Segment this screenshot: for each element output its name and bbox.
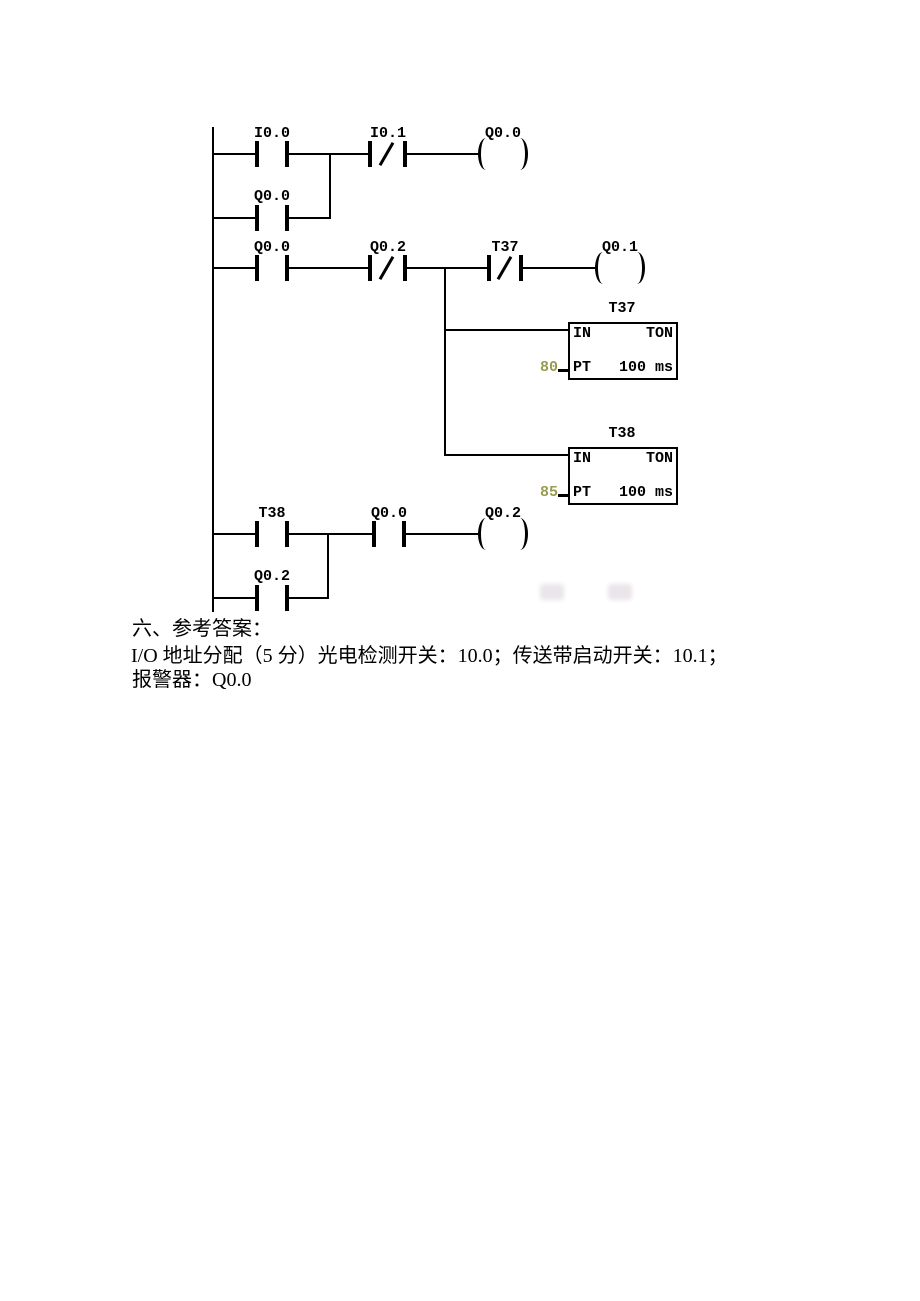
branch-wire (329, 153, 331, 219)
branch-wire (444, 267, 446, 456)
contact-bar (372, 521, 376, 547)
wire (289, 217, 331, 219)
contact-label-q00: Q0.0 (371, 506, 407, 522)
wire (289, 533, 372, 535)
contact-label-t38: T38 (258, 506, 285, 522)
timer-pt-label: PT (573, 485, 591, 501)
coil-label-q01: Q0.1 (602, 240, 638, 256)
contact-label-q02: Q0.2 (370, 240, 406, 256)
nc-slash (379, 142, 395, 166)
contact-bar (255, 585, 259, 611)
coil-label-q02: Q0.2 (485, 506, 521, 522)
document-page: I0.0 I0.1 Q0.0 Q0.0 Q0.0 Q0.2 T (0, 0, 920, 1301)
coil-paren-left (595, 252, 611, 284)
wire (446, 454, 568, 456)
wire (406, 533, 478, 535)
contact-bar (255, 141, 259, 167)
contact-bar (255, 521, 259, 547)
wire (523, 267, 595, 269)
wire (289, 597, 329, 599)
contact-label-t37: T37 (491, 240, 518, 256)
timer-base-label: 100 ms (619, 360, 673, 376)
timer-name-t37: T37 (608, 301, 635, 317)
nc-slash (497, 256, 513, 280)
parallel-contact-label-q02: Q0.2 (254, 569, 290, 585)
contact-bar (368, 255, 372, 281)
output-coil (595, 252, 645, 284)
contact-label-i00: I0.0 (254, 126, 290, 142)
preset-tick (558, 369, 568, 372)
artifact-smudge (540, 584, 564, 600)
timer-pt-label: PT (573, 360, 591, 376)
timer-in-label: IN (573, 451, 591, 467)
power-rail (212, 127, 214, 612)
contact-label-i01: I0.1 (370, 126, 406, 142)
timer-type-label: TON (646, 326, 673, 342)
answer-alarm-line: 报警器：Q0.0 (132, 667, 251, 693)
output-coil (478, 138, 528, 170)
wire (213, 597, 255, 599)
coil-paren-right (512, 518, 528, 550)
timer-preset-value: 85 (528, 485, 558, 501)
timer-in-label: IN (573, 326, 591, 342)
coil-paren-right (512, 138, 528, 170)
branch-wire (327, 533, 329, 599)
contact-label-q00: Q0.0 (254, 240, 290, 256)
preset-tick (558, 494, 568, 497)
wire (407, 267, 487, 269)
wire (213, 153, 255, 155)
answer-heading: 六、参考答案： (132, 616, 272, 642)
nc-slash (379, 256, 395, 280)
wire (213, 217, 255, 219)
timer-base-label: 100 ms (619, 485, 673, 501)
answer-io-line: I/O 地址分配（5 分）光电检测开关：10.0；传送带启动开关：10.1； (131, 643, 728, 669)
wire (407, 153, 478, 155)
coil-paren-right (629, 252, 645, 284)
timer-name-t38: T38 (608, 426, 635, 442)
contact-bar (487, 255, 491, 281)
wire (446, 329, 568, 331)
coil-paren-left (478, 518, 494, 550)
contact-bar (255, 205, 259, 231)
coil-label-q00: Q0.0 (485, 126, 521, 142)
timer-block-t37: IN TON PT 100 ms (568, 322, 678, 380)
wire (213, 267, 255, 269)
contact-bar (255, 255, 259, 281)
timer-preset-value: 80 (528, 360, 558, 376)
wire (213, 533, 255, 535)
parallel-contact-label-q00: Q0.0 (254, 189, 290, 205)
timer-block-t38: IN TON PT 100 ms (568, 447, 678, 505)
wire (289, 267, 368, 269)
contact-bar (368, 141, 372, 167)
timer-type-label: TON (646, 451, 673, 467)
artifact-smudge (608, 584, 632, 600)
output-coil (478, 518, 528, 550)
coil-paren-left (478, 138, 494, 170)
